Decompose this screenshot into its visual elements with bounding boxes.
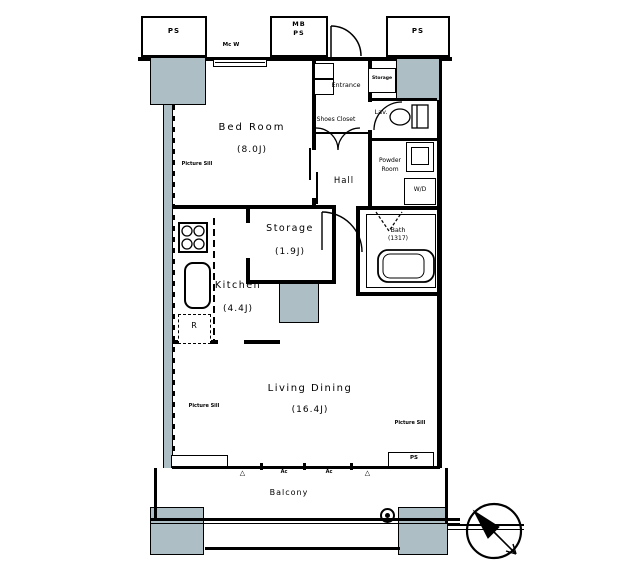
toilet-icon bbox=[390, 105, 428, 128]
column-center bbox=[279, 283, 319, 323]
balcony-rail-stub-right-1 bbox=[448, 524, 524, 526]
refrigerator-label: R bbox=[191, 322, 197, 331]
column-bottom-left bbox=[150, 507, 204, 555]
entrance-storage-label: Storage bbox=[372, 77, 392, 82]
bedroom-label: Bed Room bbox=[218, 122, 285, 133]
pipe-space-box-right bbox=[386, 16, 450, 57]
window-stile-3 bbox=[350, 463, 353, 470]
kitchen-sink bbox=[184, 262, 211, 309]
window-stile-2 bbox=[303, 463, 306, 470]
powder-room-label-line2: Room bbox=[381, 167, 398, 174]
column-top-left bbox=[150, 57, 206, 105]
bath-label: Bath bbox=[390, 227, 405, 234]
pipe-space-box-left bbox=[141, 16, 207, 57]
picture-sill-label-living-left: Picture Sill bbox=[189, 404, 220, 410]
front-door-swing bbox=[331, 26, 361, 57]
window-stile-1 bbox=[260, 463, 263, 470]
kitchen-size-label: (4.4J) bbox=[223, 305, 253, 315]
living-window-line bbox=[172, 466, 440, 469]
balcony-side-wall-right bbox=[445, 468, 448, 524]
triangle-marker-2: △ bbox=[365, 470, 371, 478]
meter-box-ps-label: PS bbox=[293, 30, 304, 37]
storage-size-label: (1.9J) bbox=[275, 248, 305, 258]
bedroom-sliding-door-leaf-a bbox=[309, 148, 311, 180]
stove bbox=[178, 222, 208, 253]
living-dining-label: Living Dining bbox=[268, 383, 353, 394]
floor-plan: PS MB PS PS Mc W Storage Lav. Powder Ro bbox=[0, 0, 640, 569]
column-bottom-right bbox=[398, 507, 448, 555]
triangle-marker-1: △ bbox=[240, 470, 246, 478]
wall-left-dashes bbox=[173, 105, 175, 465]
picture-sill-label-living-right: Picture Sill bbox=[395, 421, 426, 427]
powder-vanity-bowl bbox=[411, 147, 429, 165]
balcony-label: Balcony bbox=[270, 489, 309, 498]
washer-dryer-label: W/D bbox=[414, 187, 427, 194]
bath-size-label: (1317) bbox=[388, 236, 408, 243]
shoes-closet-label: Shoes Closet bbox=[317, 117, 356, 124]
column-top-right bbox=[396, 58, 440, 101]
wall-entrance-east-lower bbox=[368, 130, 372, 208]
kitchen-counter-line bbox=[213, 218, 215, 340]
pipe-space-label-left: PS bbox=[168, 28, 180, 36]
wall-right-exterior bbox=[437, 61, 442, 468]
entrance-label: Entrance bbox=[331, 82, 360, 89]
living-dining-size-label: (16.4J) bbox=[292, 406, 329, 416]
wall-left-exterior bbox=[163, 61, 173, 468]
wall-lav-bottom bbox=[372, 138, 437, 141]
wall-storage-left-upper bbox=[246, 209, 250, 223]
kitchen-label: Kitchen bbox=[215, 281, 261, 291]
balcony-drain-center bbox=[385, 513, 390, 518]
shoes-closet-cabinet-upper bbox=[314, 63, 334, 79]
wall-lav-top bbox=[372, 98, 437, 101]
ac-unit-label-1: Ac bbox=[281, 470, 288, 476]
wall-bath-bottom bbox=[356, 292, 440, 296]
meter-annotation: Mc W bbox=[223, 42, 240, 48]
wall-bath-left bbox=[356, 206, 360, 296]
ac-unit-label-2: Ac bbox=[326, 470, 333, 476]
meter-box-label: MB bbox=[292, 21, 305, 28]
lav-label: Lav. bbox=[374, 109, 387, 116]
balcony-side-wall-left bbox=[154, 468, 157, 518]
balcony-rail-line-1 bbox=[150, 518, 460, 521]
hall-label: Hall bbox=[334, 177, 354, 186]
entrance-step-line bbox=[314, 132, 370, 134]
pipe-space-label-balcony: PS bbox=[410, 455, 418, 461]
balcony-rail-stub-right-2 bbox=[448, 529, 524, 530]
wall-storage-right bbox=[332, 209, 336, 284]
balcony-slab-line bbox=[205, 547, 400, 550]
bedroom-sliding-door-leaf-b bbox=[316, 172, 318, 204]
storage-label: Storage bbox=[266, 224, 314, 234]
wall-kitchen-bottom-right bbox=[244, 340, 280, 344]
wall-bedroom-bottom bbox=[172, 205, 336, 209]
powder-room-label-line1: Powder bbox=[379, 158, 401, 165]
wall-powder-bottom bbox=[356, 206, 440, 210]
pipe-space-label-right: PS bbox=[412, 28, 424, 36]
balcony-rail-line-2 bbox=[150, 523, 460, 524]
bedroom-top-window-rail bbox=[215, 62, 265, 63]
compass-north-icon bbox=[467, 504, 521, 558]
picture-sill-label-bedroom: Picture Sill bbox=[182, 162, 213, 168]
bedroom-size-label: (8.0J) bbox=[237, 146, 267, 156]
bedroom-top-window bbox=[213, 59, 267, 67]
